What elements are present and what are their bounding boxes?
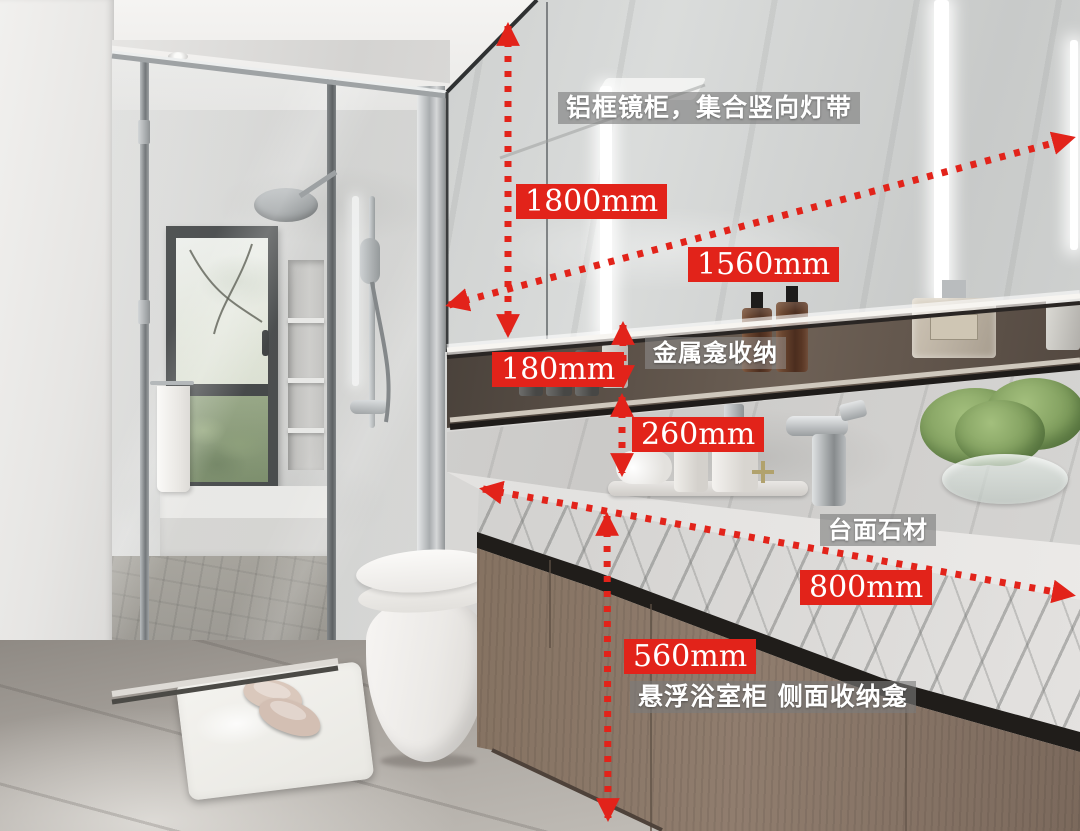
dim-label-560mm: 560mm (624, 639, 756, 674)
perfume-bottle (912, 298, 996, 358)
glass-door-frame (140, 58, 149, 706)
glass-mid-frame (327, 78, 336, 688)
dim-label-1800mm: 1800mm (516, 184, 667, 219)
hand-towel (157, 386, 190, 492)
caption-countertop: 台面石材 (820, 514, 936, 546)
dim-label-800mm: 800mm (800, 570, 932, 605)
towel-bar (150, 381, 194, 385)
glass-door-hinge (138, 120, 150, 144)
caption-vanity: 悬浮浴室柜 侧面收纳龛 (630, 681, 916, 713)
dim-label-180mm: 180mm (492, 352, 624, 387)
vertical-led-strip (934, 0, 949, 300)
perfume-label (930, 314, 978, 340)
caption-mirror-cabinet: 铝框镜柜，集合竖向灯带 (558, 92, 860, 124)
faucet-spout (786, 416, 848, 436)
glass-door-hinge (138, 300, 150, 324)
dim-label-1560mm: 1560mm (688, 247, 839, 282)
vertical-led-strip (1070, 40, 1078, 250)
rolled-towel (616, 451, 672, 484)
bottle-pump (751, 292, 763, 308)
caption-metal-niche: 金属龛收纳 (645, 337, 786, 369)
dim-label-260mm: 260mm (632, 417, 764, 452)
ceiling-spotlight (168, 52, 188, 61)
perfume-cap (942, 280, 966, 298)
bottle-pump (786, 286, 798, 302)
ceramic-canister (674, 445, 708, 492)
faucet-body (812, 434, 846, 506)
bathroom-photo: 铝框镜柜，集合竖向灯带 金属龛收纳 台面石材 悬浮浴室柜 侧面收纳龛 1800m… (0, 0, 1080, 831)
glass-bottle (1046, 296, 1080, 350)
glass-plant-bowl (942, 454, 1068, 504)
